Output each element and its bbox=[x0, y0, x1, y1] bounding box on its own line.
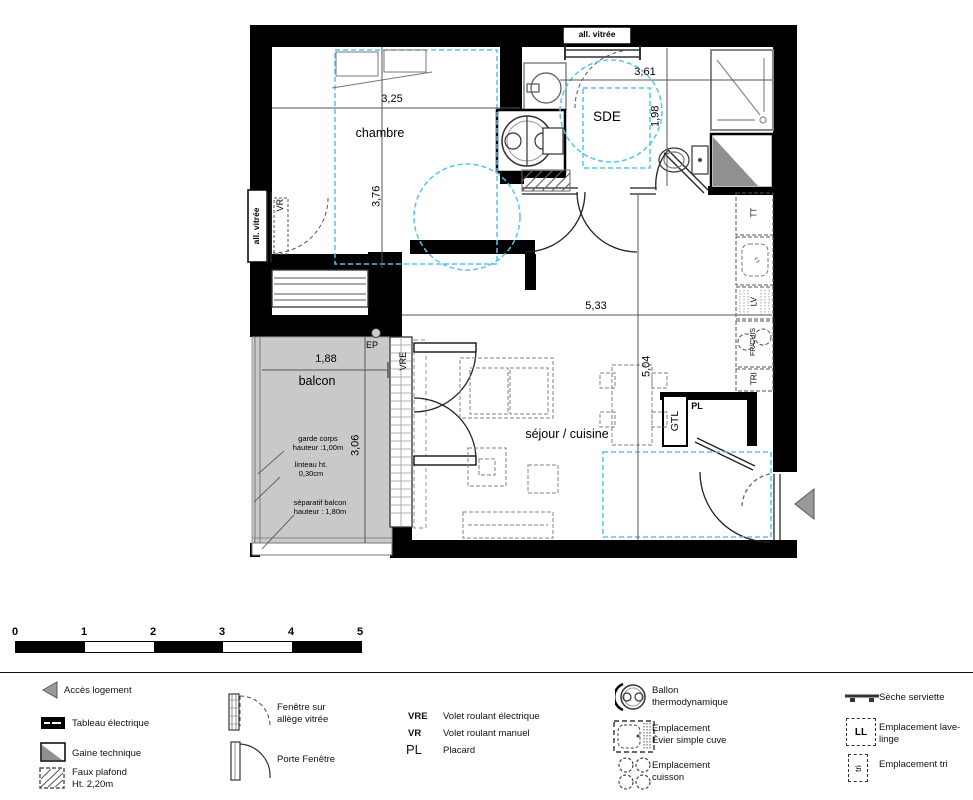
floor-plan-drawing bbox=[0, 0, 973, 625]
floor-plan-page: chambre 3,25 3,76 SDE 3,61 1,98 5,33 5,0… bbox=[0, 0, 973, 800]
legend-divider bbox=[0, 672, 973, 673]
washer-icon-label: LL bbox=[855, 727, 867, 738]
legend-gaine-label: Gaine technique bbox=[72, 748, 141, 760]
access-arrow-icon bbox=[40, 680, 60, 700]
legend-access-label: Accès logement bbox=[64, 685, 132, 697]
label-tri: TRI bbox=[749, 364, 758, 394]
heat-pump-tank-icon bbox=[615, 682, 649, 712]
room-label-sejour: séjour / cuisine bbox=[507, 427, 627, 441]
legend-faux-plafond-label: Faux plafond Ht. 2,20m bbox=[72, 767, 127, 791]
waste-sorting-location-icon: tri bbox=[848, 754, 868, 782]
label-fr-cuis: FR/CUIS bbox=[750, 319, 758, 365]
legend-lave-linge-label: Emplacement lave- linge bbox=[879, 722, 960, 746]
entrance-arrow-icon bbox=[795, 489, 814, 519]
washer-location-icon: LL bbox=[846, 718, 876, 746]
label-vre: VRE bbox=[398, 343, 408, 379]
window-sill-icon bbox=[226, 692, 272, 732]
towel-dryer-icon bbox=[843, 690, 881, 704]
scale-tick: 1 bbox=[78, 626, 90, 638]
legend-pl-desc: Placard bbox=[443, 745, 475, 757]
legend-porte-fenetre-label: Porte Fenêtre bbox=[277, 754, 335, 766]
legend-evier-label: Emplacement Évier simple cuve bbox=[652, 723, 726, 747]
legend-tri-label: Emplacement tri bbox=[879, 759, 948, 771]
legend-cuisson-label: Emplacement cuisson bbox=[652, 760, 710, 784]
electrical-panel-icon bbox=[40, 716, 66, 730]
room-label-sde: SDE bbox=[577, 109, 637, 125]
legend-vre-abbr: VRE bbox=[408, 711, 428, 722]
dim-balcon-width: 1,88 bbox=[301, 353, 351, 366]
legend-tableau-label: Tableau électrique bbox=[72, 718, 149, 730]
legend-vre-desc: Volet roulant électrique bbox=[443, 711, 540, 723]
scale-tick: 4 bbox=[285, 626, 297, 638]
scale-tick: 5 bbox=[354, 626, 366, 638]
sink-location-icon bbox=[613, 720, 657, 754]
dim-sde-width: 3,61 bbox=[620, 66, 670, 79]
scale-tick: 2 bbox=[147, 626, 159, 638]
legend-seche-label: Sèche serviette bbox=[879, 692, 944, 704]
label-tt: TT bbox=[749, 198, 758, 228]
scale-tick: 0 bbox=[9, 626, 21, 638]
room-label-balcon: balcon bbox=[282, 374, 352, 388]
dim-sde-depth: 1,98 bbox=[650, 91, 663, 141]
dim-chambre-width: 3,25 bbox=[367, 93, 417, 106]
legend-vr-desc: Volet roulant manuel bbox=[443, 728, 530, 740]
label-vr: VR bbox=[275, 190, 285, 220]
label-lv: LV bbox=[749, 287, 758, 317]
dim-chambre-depth: 3,76 bbox=[371, 171, 384, 221]
dim-sejour-width: 5,33 bbox=[571, 300, 621, 313]
label-gtl: GTL bbox=[669, 401, 681, 441]
cooktop-location-icon bbox=[616, 756, 652, 790]
doors bbox=[414, 150, 780, 542]
legend-fenetre-label: Fenêtre sur allège vitrée bbox=[277, 702, 328, 726]
scale-tick: 3 bbox=[216, 626, 228, 638]
label-pl: PL bbox=[685, 401, 709, 411]
annotation-garde-corps: garde corps hauteur :1,00m bbox=[273, 435, 363, 452]
technical-duct-icon bbox=[40, 742, 66, 762]
waste-sorting-icon-label: tri bbox=[853, 765, 862, 772]
dim-sejour-depth: 5,04 bbox=[641, 341, 654, 391]
label-ep: EP bbox=[358, 340, 386, 350]
legend-ballon-label: Ballon thermodynamique bbox=[652, 685, 728, 709]
annotation-linteau: linteau ht. 0,30cm bbox=[271, 461, 351, 478]
room-label-chambre: chambre bbox=[340, 126, 420, 140]
legend-pl-abbr: PL bbox=[406, 742, 422, 757]
scale-bar-graphic bbox=[15, 641, 362, 653]
label-all-vitree-left: all. vitrée bbox=[252, 191, 262, 261]
french-door-icon bbox=[228, 740, 272, 782]
legend-vr-abbr: VR bbox=[408, 728, 421, 739]
dropped-ceiling-icon bbox=[38, 766, 66, 790]
annotation-separatif: séparatif balcon hauteur : 1,80m bbox=[270, 499, 370, 516]
label-all-vitree-top: all. vitrée bbox=[563, 30, 631, 40]
